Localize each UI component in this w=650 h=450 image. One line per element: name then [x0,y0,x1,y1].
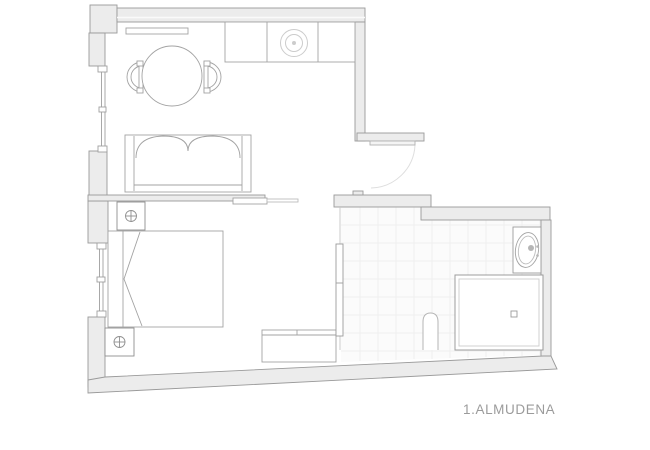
dining-chair-left [127,61,143,93]
faucet-icon [528,245,534,251]
wall-segment [117,8,365,22]
storage-bench [262,330,336,362]
wall-segment [355,22,365,141]
bedside-table-top [117,202,145,230]
door-swing-arc [371,145,415,188]
wall-segment [357,133,424,141]
washbasin [513,227,541,273]
bathroom-wall-step [421,207,550,220]
floor-plan-canvas: 1.ALMUDENA [0,0,650,450]
light-symbol-icon [126,211,137,222]
wall-shelf [126,28,188,34]
dining-table [142,46,202,106]
plan-title: 1.ALMUDENA [463,402,555,417]
wall-tab [353,191,363,195]
window-living [98,66,107,152]
door-leaf [370,141,415,145]
light-symbol-icon [114,337,125,348]
bathroom-wall-upper [334,195,431,207]
desk-shelf [233,198,298,204]
entrance-door [370,141,415,188]
bed [108,231,223,327]
window-bedroom [97,243,106,317]
toilet [423,313,438,350]
wall-segment [90,5,117,33]
shower [455,275,543,350]
wall-segment [88,201,108,243]
sofa [125,135,251,192]
dining-chair-right [204,61,221,93]
bathroom-sliding-door [336,244,343,336]
shower-drain-icon [511,311,517,317]
wall-segment [89,33,105,66]
bedside-table-bottom [105,328,134,356]
floor-plan-page: 1.ALMUDENA [0,0,650,450]
wall-segment [88,317,105,387]
